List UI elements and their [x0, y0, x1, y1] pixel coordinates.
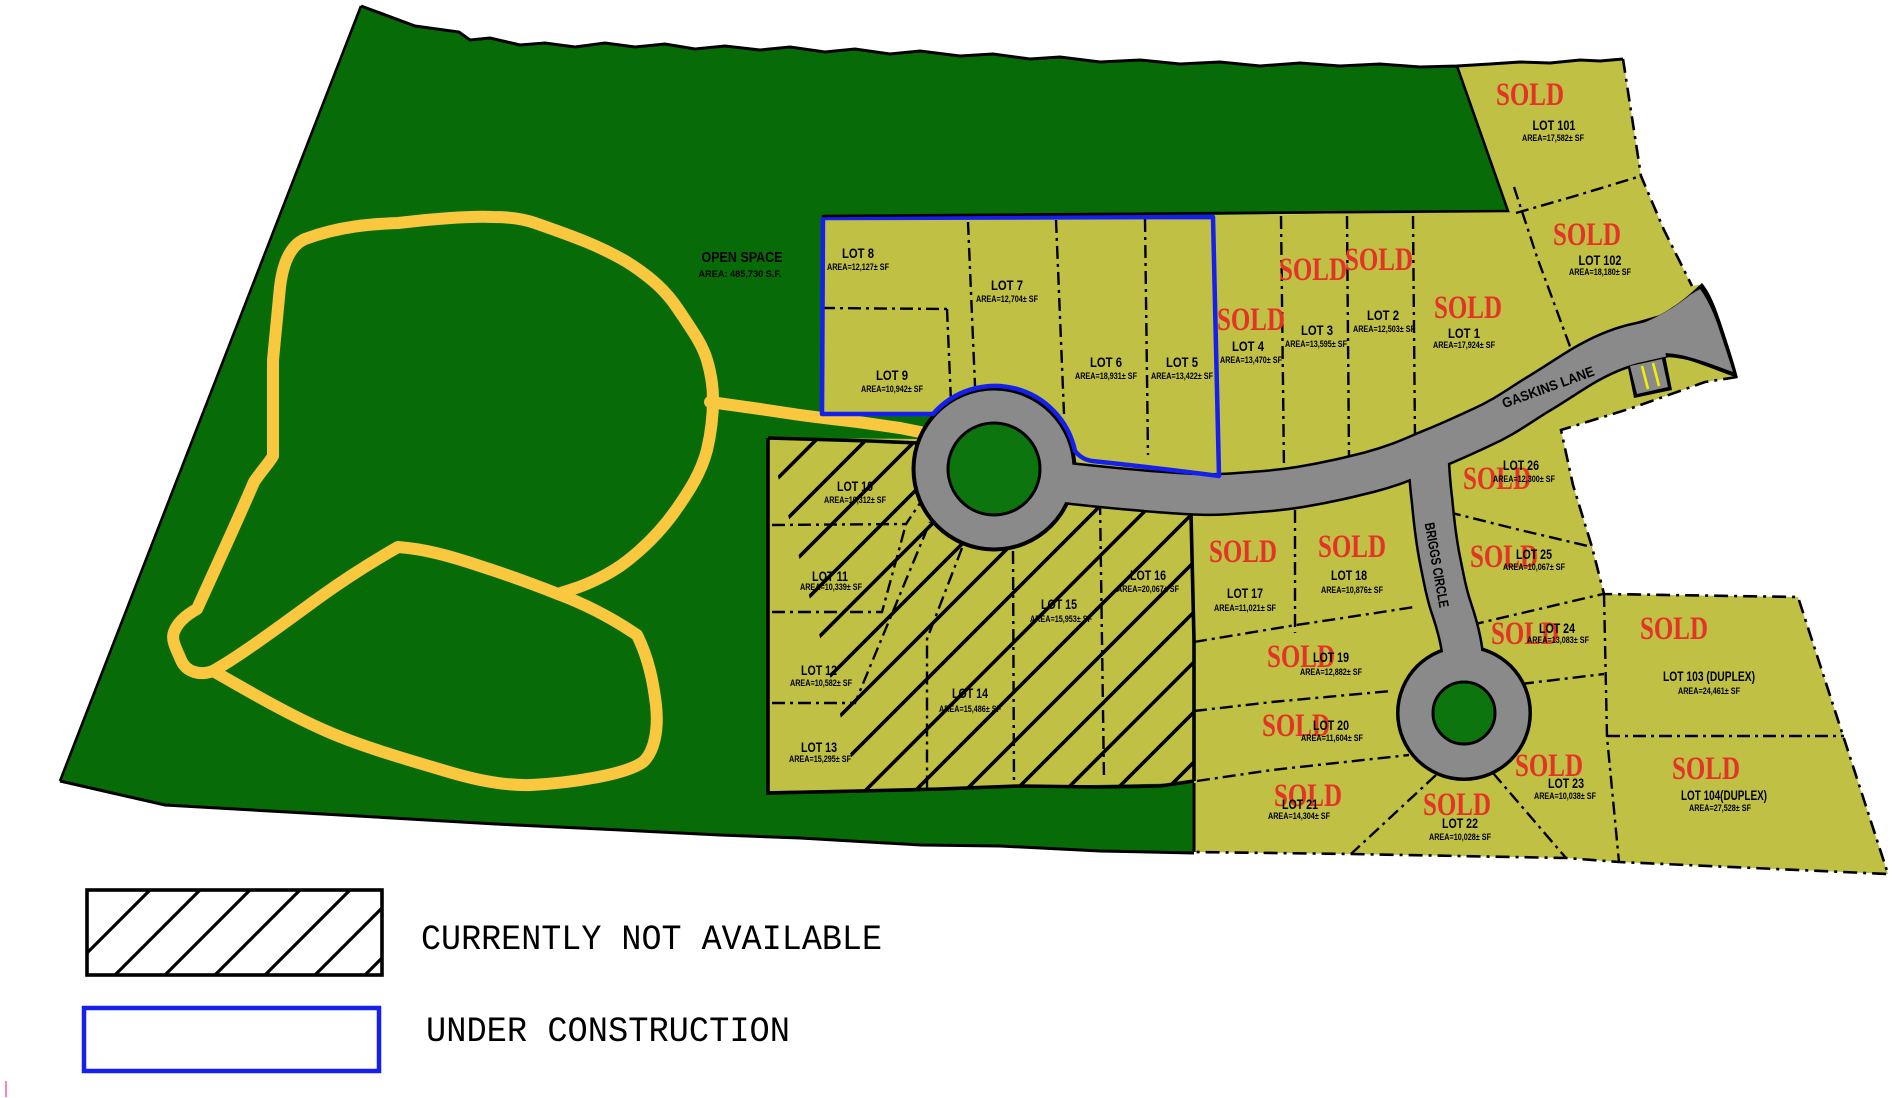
svg-text:SOLD: SOLD — [1279, 252, 1347, 288]
svg-text:AREA: 485,730 S.F.: AREA: 485,730 S.F. — [699, 269, 782, 280]
svg-text:SOLD: SOLD — [1434, 290, 1502, 326]
svg-text:SOLD: SOLD — [1640, 611, 1708, 647]
svg-text:AREA=10,582± SF: AREA=10,582± SF — [790, 678, 852, 689]
svg-text:AREA=12,300± SF: AREA=12,300± SF — [1493, 474, 1555, 485]
svg-text:AREA=10,876± SF: AREA=10,876± SF — [1321, 585, 1383, 596]
svg-text:AREA=15,953± SF: AREA=15,953± SF — [1030, 614, 1092, 625]
svg-text:LOT 26: LOT 26 — [1503, 458, 1539, 473]
svg-text:AREA=18,931± SF: AREA=18,931± SF — [1075, 371, 1137, 382]
svg-text:AREA=10,312± SF: AREA=10,312± SF — [824, 495, 886, 506]
svg-text:LOT 104(DUPLEX): LOT 104(DUPLEX) — [1681, 788, 1767, 803]
svg-text:OPEN SPACE: OPEN SPACE — [702, 249, 783, 266]
svg-text:LOT 10: LOT 10 — [837, 479, 873, 494]
svg-text:LOT 17: LOT 17 — [1227, 586, 1263, 601]
svg-text:LOT 7: LOT 7 — [991, 278, 1023, 293]
svg-text:AREA=12,127± SF: AREA=12,127± SF — [827, 262, 889, 273]
svg-text:AREA=18,180± SF: AREA=18,180± SF — [1569, 267, 1631, 278]
svg-text:AREA=13,595± SF: AREA=13,595± SF — [1285, 339, 1347, 350]
svg-text:AREA=13,083± SF: AREA=13,083± SF — [1527, 635, 1589, 646]
svg-text:LOT 6: LOT 6 — [1090, 355, 1122, 370]
svg-text:LOT 18: LOT 18 — [1331, 568, 1367, 583]
svg-text:LOT 5: LOT 5 — [1166, 355, 1198, 370]
svg-text:UNDER CONSTRUCTION: UNDER CONSTRUCTION — [426, 1012, 790, 1052]
svg-text:AREA=20,067± SF: AREA=20,067± SF — [1117, 584, 1179, 595]
svg-text:LOT 25: LOT 25 — [1516, 547, 1552, 562]
svg-text:LOT 4: LOT 4 — [1232, 339, 1264, 354]
svg-text:LOT 101: LOT 101 — [1533, 118, 1576, 133]
svg-text:AREA=15,295± SF: AREA=15,295± SF — [789, 754, 851, 765]
svg-text:LOT 9: LOT 9 — [876, 368, 908, 383]
svg-text:LOT 23: LOT 23 — [1548, 776, 1584, 791]
svg-text:AREA=24,461± SF: AREA=24,461± SF — [1678, 686, 1740, 697]
svg-text:LOT 16: LOT 16 — [1130, 568, 1166, 583]
svg-text:LOT 24: LOT 24 — [1539, 621, 1575, 636]
svg-text:AREA=14,304± SF: AREA=14,304± SF — [1268, 811, 1330, 822]
svg-text:LOT 21: LOT 21 — [1282, 797, 1318, 812]
svg-text:AREA=10,038± SF: AREA=10,038± SF — [1534, 791, 1596, 802]
svg-text:LOT 3: LOT 3 — [1301, 323, 1333, 338]
svg-text:LOT 1: LOT 1 — [1448, 326, 1480, 341]
svg-text:AREA=27,528± SF: AREA=27,528± SF — [1689, 803, 1751, 814]
svg-text:AREA=10,339± SF: AREA=10,339± SF — [800, 582, 862, 593]
svg-text:LOT 12: LOT 12 — [801, 663, 837, 678]
svg-text:AREA=13,470± SF: AREA=13,470± SF — [1220, 355, 1282, 366]
svg-text:SOLD: SOLD — [1217, 302, 1285, 338]
svg-text:SOLD: SOLD — [1209, 534, 1277, 570]
svg-text:AREA=17,582± SF: AREA=17,582± SF — [1522, 133, 1584, 144]
svg-text:LOT 2: LOT 2 — [1367, 308, 1399, 323]
svg-text:AREA=12,882± SF: AREA=12,882± SF — [1300, 667, 1362, 678]
svg-text:AREA=13,422± SF: AREA=13,422± SF — [1151, 371, 1213, 382]
svg-text:LOT 13: LOT 13 — [801, 740, 837, 755]
svg-text:LOT 102: LOT 102 — [1579, 253, 1622, 268]
svg-text:AREA=15,486± SF: AREA=15,486± SF — [939, 704, 1001, 715]
svg-text:AREA=11,604± SF: AREA=11,604± SF — [1301, 733, 1363, 744]
svg-text:AREA=10,067± SF: AREA=10,067± SF — [1503, 562, 1565, 573]
svg-text:CURRENTLY NOT AVAILABLE: CURRENTLY NOT AVAILABLE — [421, 920, 882, 960]
svg-text:LOT 15: LOT 15 — [1041, 597, 1077, 612]
svg-text:SOLD: SOLD — [1553, 217, 1621, 253]
svg-text:AREA=10,028± SF: AREA=10,028± SF — [1429, 832, 1491, 843]
svg-text:AREA=10,942± SF: AREA=10,942± SF — [861, 384, 923, 395]
svg-text:SOLD: SOLD — [1318, 529, 1386, 565]
svg-text:LOT 8: LOT 8 — [842, 246, 874, 261]
svg-text:LOT 20: LOT 20 — [1313, 718, 1349, 733]
svg-text:LOT 22: LOT 22 — [1442, 816, 1478, 831]
svg-text:AREA=11,021± SF: AREA=11,021± SF — [1214, 603, 1276, 614]
svg-text:SOLD: SOLD — [1496, 77, 1564, 113]
svg-text:LOT 14: LOT 14 — [952, 686, 988, 701]
svg-text:LOT 103 (DUPLEX): LOT 103 (DUPLEX) — [1663, 669, 1755, 684]
svg-text:AREA=12,704± SF: AREA=12,704± SF — [976, 294, 1038, 305]
svg-text:AREA=12,503± SF: AREA=12,503± SF — [1353, 324, 1415, 335]
svg-text:SOLD: SOLD — [1672, 751, 1740, 787]
svg-text:SOLD: SOLD — [1345, 242, 1413, 278]
svg-text:AREA=17,924± SF: AREA=17,924± SF — [1433, 340, 1495, 351]
svg-text:LOT 19: LOT 19 — [1313, 650, 1349, 665]
